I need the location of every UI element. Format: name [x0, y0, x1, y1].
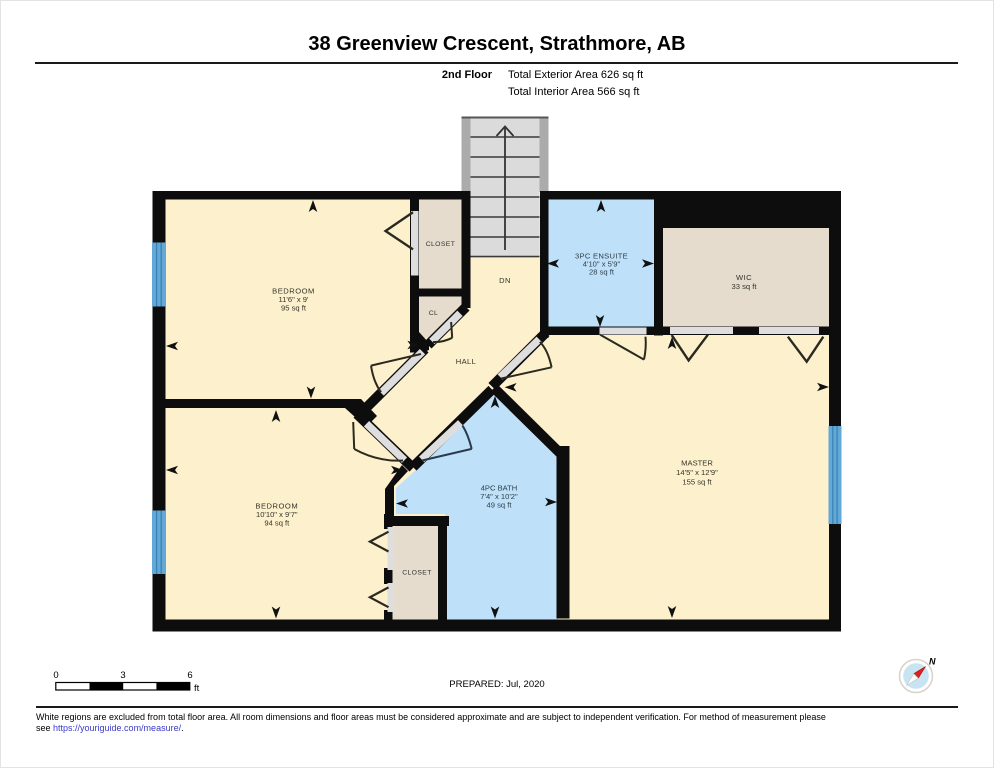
- svg-text:CLOSET: CLOSET: [402, 570, 432, 577]
- svg-text:3: 3: [120, 670, 125, 681]
- svg-text:WIC: WIC: [736, 273, 752, 282]
- svg-text:94 sq ft: 94 sq ft: [264, 519, 290, 528]
- svg-text:CLOSET: CLOSET: [426, 241, 456, 248]
- svg-text:CL: CL: [429, 310, 439, 317]
- svg-text:155 sq ft: 155 sq ft: [682, 478, 712, 487]
- svg-text:PREPARED: Jul, 2020: PREPARED: Jul, 2020: [449, 679, 544, 690]
- svg-text:MASTER: MASTER: [681, 459, 713, 468]
- svg-text:28 sq ft: 28 sq ft: [589, 268, 615, 277]
- svg-text:14'5" x 12'9": 14'5" x 12'9": [676, 468, 718, 477]
- svg-text:95 sq ft: 95 sq ft: [281, 304, 307, 313]
- svg-text:HALL: HALL: [456, 357, 477, 366]
- svg-text:49 sq ft: 49 sq ft: [487, 501, 513, 510]
- svg-text:N: N: [929, 657, 936, 667]
- svg-text:ft: ft: [194, 683, 200, 694]
- svg-text:0: 0: [53, 670, 58, 681]
- svg-text:DN: DN: [499, 276, 511, 285]
- svg-text:6: 6: [187, 670, 192, 681]
- svg-text:33 sq ft: 33 sq ft: [732, 282, 758, 291]
